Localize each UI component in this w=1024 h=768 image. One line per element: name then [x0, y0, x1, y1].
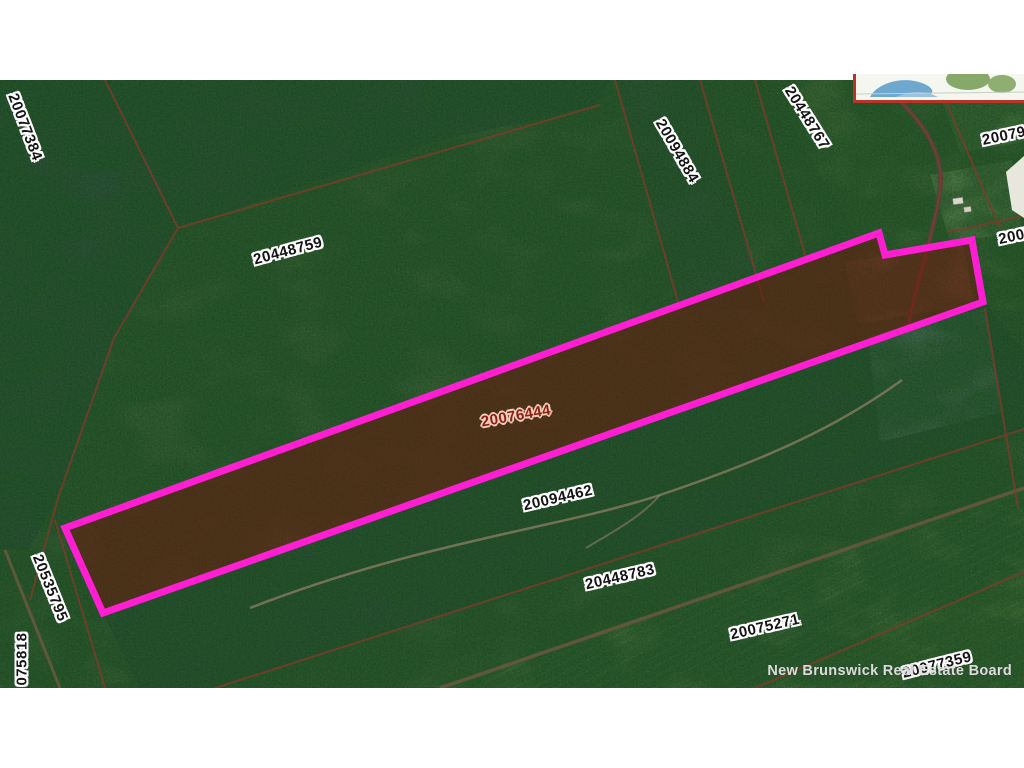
inset-land-2: [988, 75, 1016, 93]
aerial-map-image: [0, 80, 1024, 688]
watermark-text: New Brunswick Real Estate Board: [767, 663, 1012, 679]
locator-inset-map: [853, 74, 1024, 103]
map-terrain: [0, 80, 1024, 688]
parcel-label-075818-partial: 075818: [15, 632, 30, 685]
